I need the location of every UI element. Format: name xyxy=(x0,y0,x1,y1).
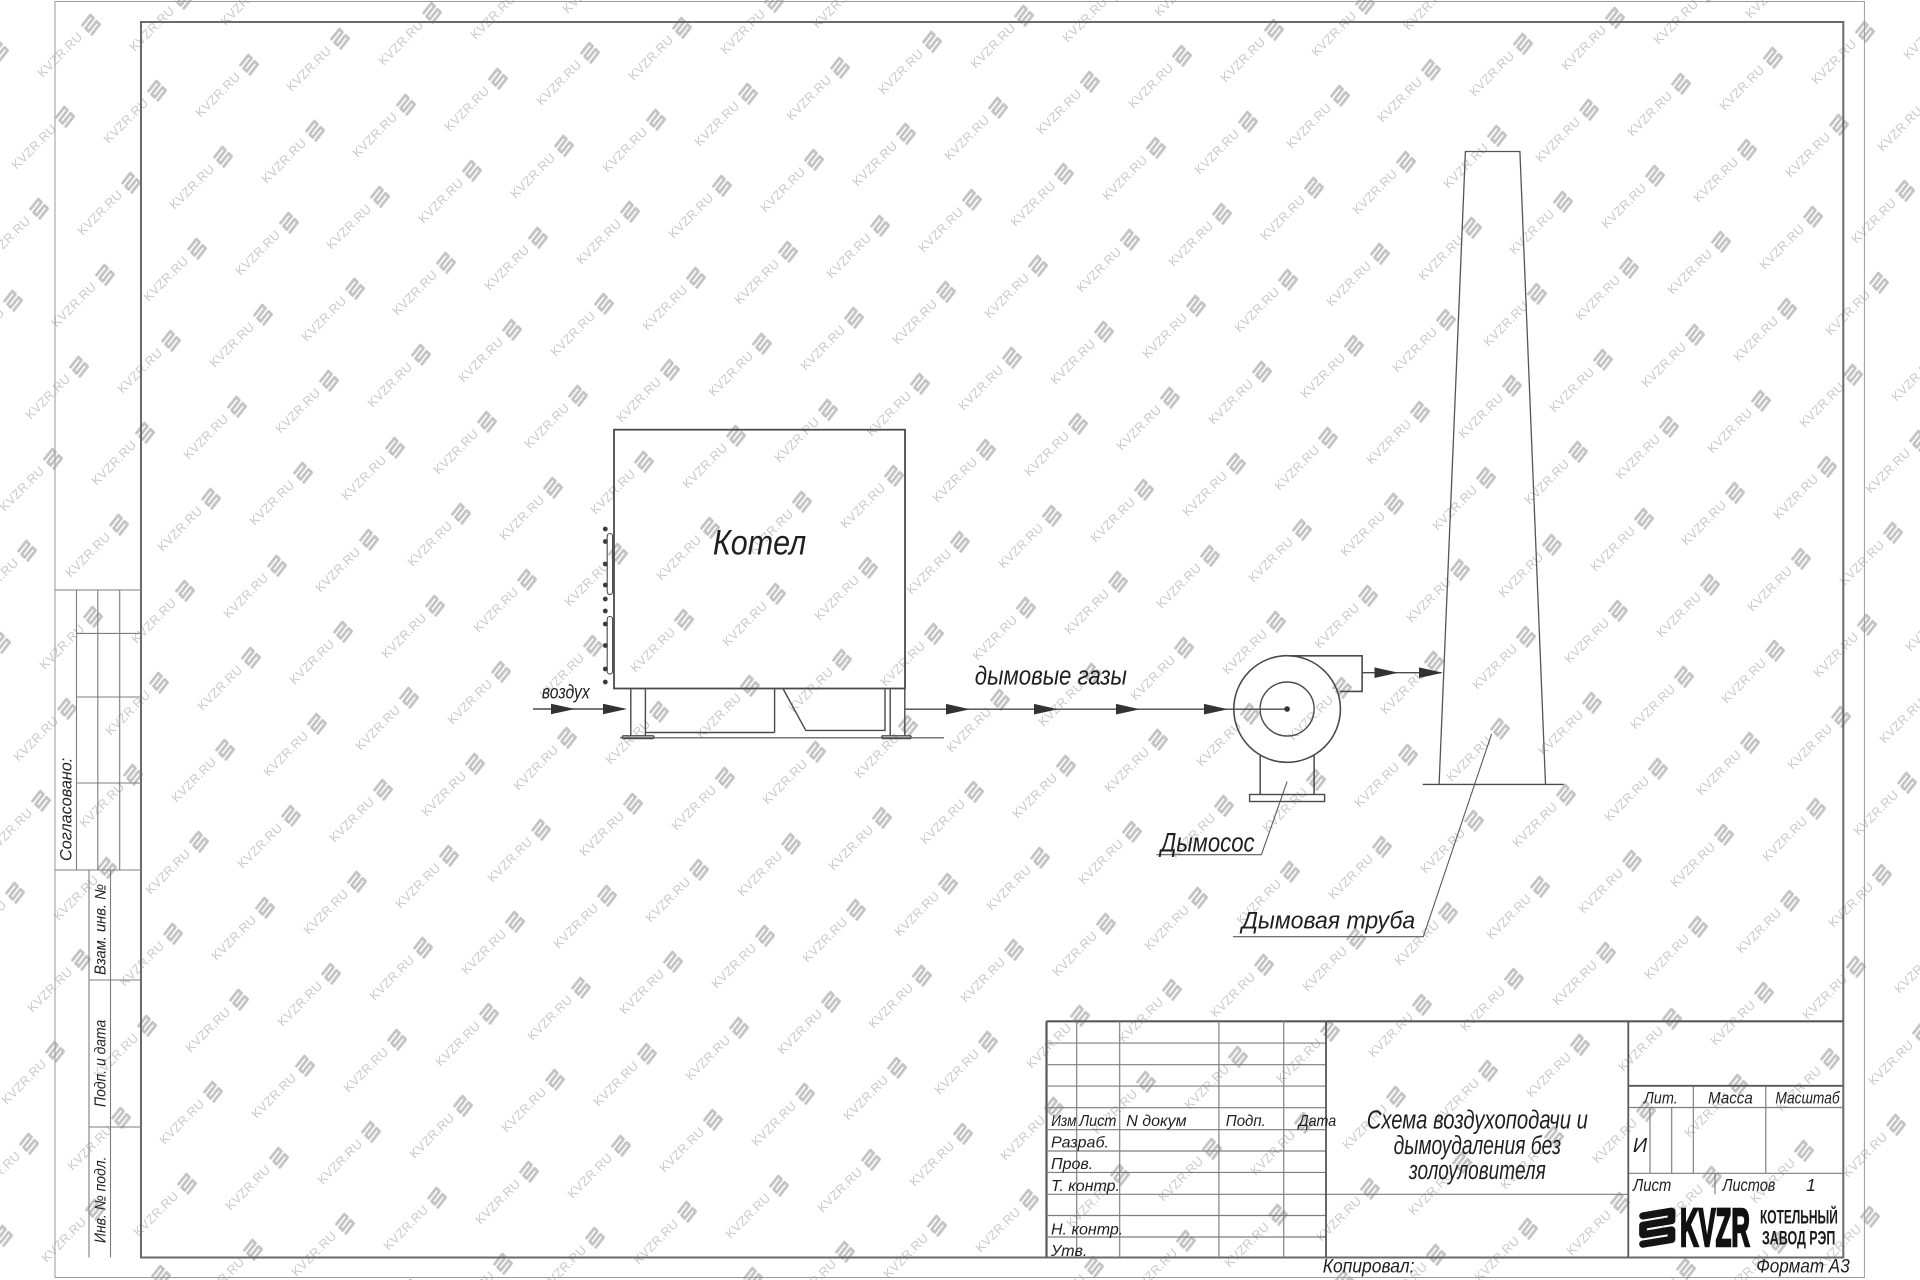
svg-text:1: 1 xyxy=(1806,1175,1816,1195)
svg-text:N докум: N докум xyxy=(1126,1113,1186,1130)
svg-text:КОТЕЛЬНЫЙ: КОТЕЛЬНЫЙ xyxy=(1760,1206,1838,1229)
svg-text:Дымовая труба: Дымовая труба xyxy=(1239,907,1415,934)
svg-text:воздух: воздух xyxy=(542,681,591,703)
svg-text:Изм: Изм xyxy=(1051,1113,1076,1130)
svg-text:Инв. № подл.: Инв. № подл. xyxy=(93,1156,110,1243)
svg-text:Утв.: Утв. xyxy=(1050,1243,1087,1260)
svg-text:Лист: Лист xyxy=(1632,1176,1671,1195)
svg-text:Котел: Котел xyxy=(713,522,806,561)
svg-text:KVZR: KVZR xyxy=(1680,1197,1750,1257)
svg-text:Взам. инв. №: Взам. инв. № xyxy=(92,884,109,975)
svg-text:ЗАВОД РЭП: ЗАВОД РЭП xyxy=(1762,1228,1835,1249)
svg-text:И: И xyxy=(1633,1135,1648,1157)
svg-text:Масштаб: Масштаб xyxy=(1775,1089,1840,1108)
svg-text:Лит.: Лит. xyxy=(1643,1089,1678,1107)
svg-text:Лист: Лист xyxy=(1078,1112,1116,1130)
svg-text:Согласовано:: Согласовано: xyxy=(58,758,76,861)
svg-text:Подп.: Подп. xyxy=(1226,1113,1266,1131)
svg-text:Копировал:: Копировал: xyxy=(1323,1255,1415,1277)
svg-text:Листов: Листов xyxy=(1722,1176,1776,1196)
svg-text:Т. контр.: Т. контр. xyxy=(1051,1178,1120,1195)
svg-text:Пров.: Пров. xyxy=(1051,1156,1093,1173)
svg-text:Масса: Масса xyxy=(1708,1089,1753,1108)
svg-text:Формат А3: Формат А3 xyxy=(1756,1256,1850,1277)
svg-text:Подп. и дата: Подп. и дата xyxy=(93,1020,110,1107)
svg-text:золоуловителя: золоуловителя xyxy=(1408,1155,1546,1185)
svg-text:Дата: Дата xyxy=(1297,1112,1336,1130)
svg-text:дымовые газы: дымовые газы xyxy=(975,662,1127,691)
svg-text:Разраб.: Разраб. xyxy=(1051,1135,1109,1152)
svg-text:Дымосос: Дымосос xyxy=(1158,828,1255,858)
svg-text:Н. контр.: Н. контр. xyxy=(1051,1222,1123,1239)
